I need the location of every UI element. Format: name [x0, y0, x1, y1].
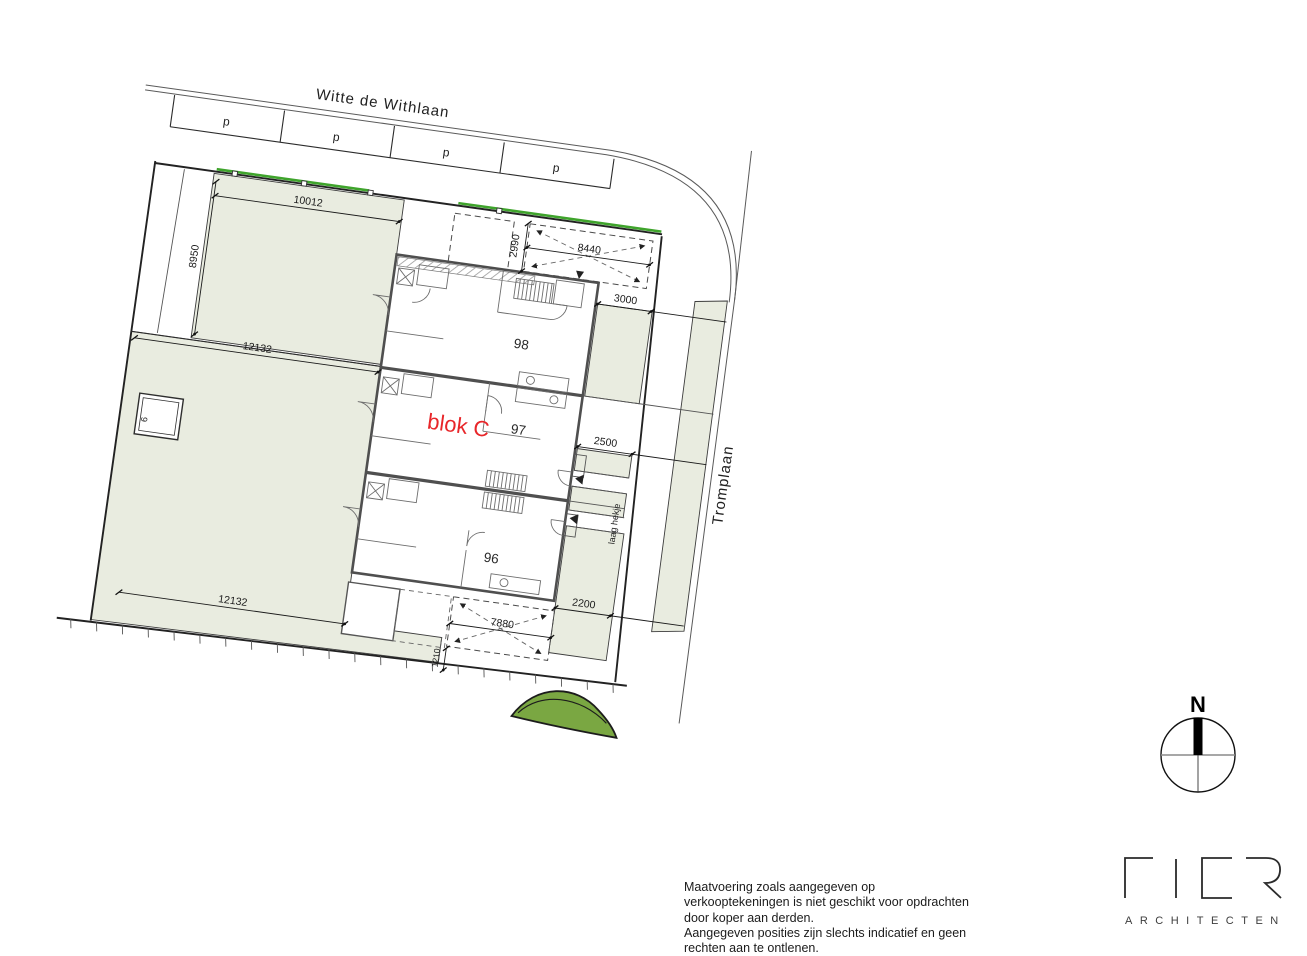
unit-number-98: 98	[513, 336, 530, 353]
dim-side-top: 3000	[613, 292, 638, 307]
carport-dashed	[448, 213, 514, 270]
garden-shed: 6	[134, 393, 183, 440]
unit-number-97: 97	[510, 421, 527, 438]
entry-arrow-97	[574, 474, 583, 485]
dim-front-depth: 2990	[507, 233, 522, 258]
disclaimer-line: verkooptekeningen is niet geschikt voor …	[684, 895, 1004, 910]
tree-icon	[511, 685, 622, 738]
dim-garden-left-depth: 8950	[187, 244, 202, 269]
parking-space-label: p	[552, 160, 561, 175]
north-label: N	[1190, 692, 1206, 717]
disclaimer-note: Maatvoering zoals aangegeven op verkoopt…	[684, 880, 1004, 956]
dim-side-middle: 2500	[593, 435, 618, 450]
disclaimer-line: Aangegeven posities zijn slechts indicat…	[684, 926, 1004, 941]
unit-number-96: 96	[483, 550, 500, 567]
fier-logo-icon	[1125, 858, 1281, 898]
disclaimer-line: rechten aan te ontlenen.	[684, 941, 1004, 956]
rotated-site-group: p p p p Witte de Withlaan Tromplaan	[51, 60, 779, 749]
disclaimer-line: Maatvoering zoals aangegeven op	[684, 880, 1004, 895]
site-plan-drawing: p p p p Witte de Withlaan Tromplaan	[0, 0, 1307, 956]
parking-space-label: p	[222, 114, 231, 129]
street-label-right: Tromplaan	[709, 444, 737, 526]
street-label-top: Witte de Withlaan	[315, 86, 451, 122]
dim-rear-offset: 1210	[430, 648, 443, 668]
north-needle	[1194, 718, 1203, 755]
parking-space-label: p	[442, 145, 451, 160]
disclaimer-line: door koper aan derden.	[684, 911, 1004, 926]
dim-front-width: 8440	[577, 242, 602, 257]
dim-rear-width: 7880	[490, 616, 515, 631]
site-plan-page: p p p p Witte de Withlaan Tromplaan	[0, 0, 1307, 956]
parking-space-label: p	[332, 130, 341, 145]
logo-subtitle: ARCHITECTEN	[1125, 915, 1295, 927]
north-compass: N	[1161, 692, 1235, 792]
